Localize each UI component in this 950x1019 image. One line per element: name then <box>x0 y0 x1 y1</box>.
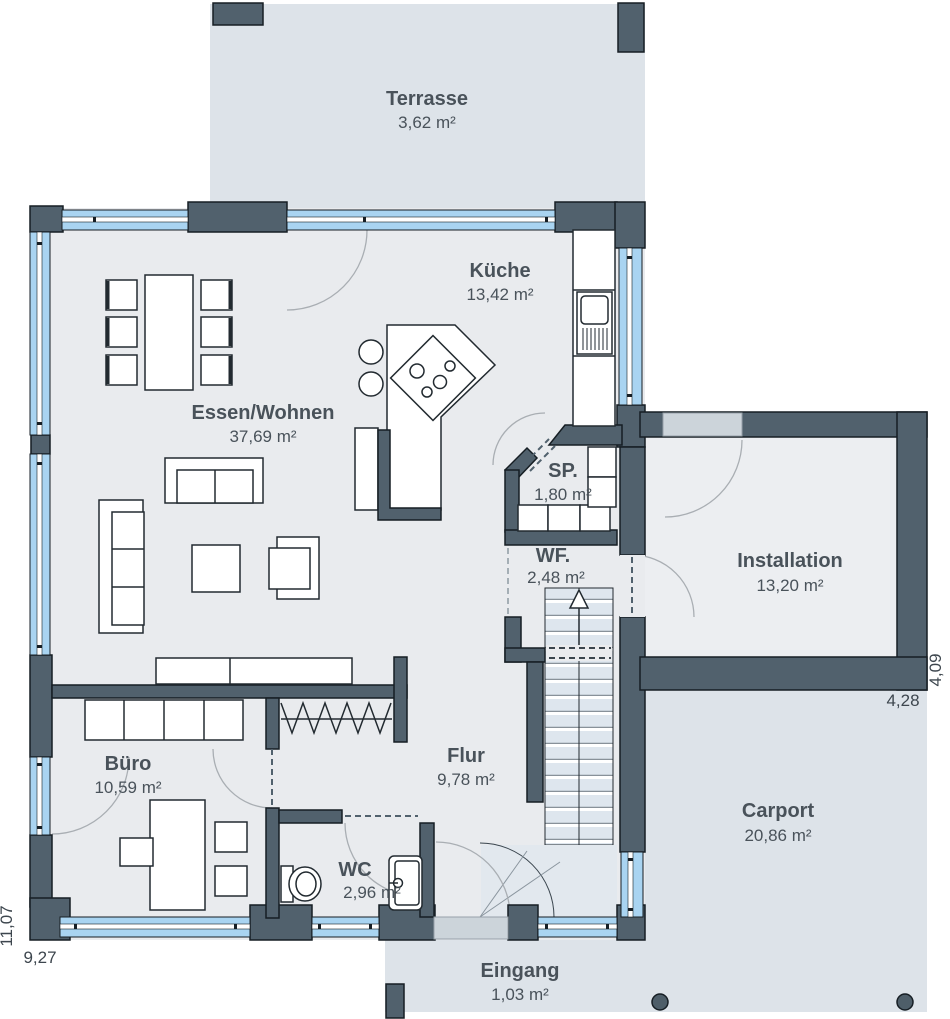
chair <box>201 355 232 385</box>
room-label-wc: WC <box>338 859 371 881</box>
room-label-flur: Flur <box>447 745 485 767</box>
wall-segment <box>30 835 52 907</box>
window <box>621 852 643 917</box>
window <box>30 454 50 655</box>
room-label-kueche: Küche <box>469 260 530 282</box>
room-area-installation: 13,20 m² <box>756 576 823 595</box>
room-area-sp: 1,80 m² <box>534 485 592 504</box>
wall-segment <box>31 435 50 454</box>
room-label-essen-wohnen: Essen/Wohnen <box>192 402 335 424</box>
room-area-flur: 9,78 m² <box>437 770 495 789</box>
eingang-post <box>386 984 404 1018</box>
terrasse-post-right <box>618 3 644 52</box>
island-counter <box>355 428 378 510</box>
room-area-buero: 10,59 m² <box>94 778 161 797</box>
office-box <box>215 822 247 852</box>
sink-basin <box>581 296 608 324</box>
room-area-wc: 2,96 m² <box>343 883 401 902</box>
wall-segment <box>52 685 407 698</box>
burner <box>410 364 424 378</box>
dimension-wing-right: 4,09 <box>926 653 945 686</box>
wall-segment <box>394 657 407 742</box>
dining-table <box>145 275 193 390</box>
burner <box>422 387 432 397</box>
window <box>538 917 617 937</box>
desk-chair <box>120 838 153 866</box>
chair <box>106 355 137 385</box>
burner <box>445 361 455 371</box>
sideboard <box>156 658 352 684</box>
wall-segment <box>615 202 645 248</box>
carport-post-right <box>897 994 913 1010</box>
wall-segment <box>266 808 279 918</box>
shelf <box>580 505 610 531</box>
wall-segment <box>279 810 342 823</box>
carport-post-left <box>652 994 668 1010</box>
room-label-terrasse: Terrasse <box>386 88 468 110</box>
desk <box>150 800 205 910</box>
wall-segment <box>505 530 617 545</box>
wall-segment <box>897 412 927 690</box>
chair <box>201 317 232 347</box>
shelf <box>588 477 616 507</box>
room-area-kueche: 13,42 m² <box>466 285 533 304</box>
room-label-wf: WF. <box>536 545 570 567</box>
room-area-wf: 2,48 m² <box>527 568 585 587</box>
sofa-seat <box>112 512 144 625</box>
dimension-wing-bottom: 4,28 <box>886 691 919 710</box>
wall-segment <box>188 202 287 232</box>
room-label-installation: Installation <box>737 550 843 572</box>
wall-segment <box>620 447 645 555</box>
room-area-eingang: 1,03 m² <box>491 985 549 1004</box>
room-area-carport: 20,86 m² <box>744 826 811 845</box>
window <box>287 210 555 230</box>
armchair-seat <box>269 548 310 589</box>
wall-segment <box>555 202 617 232</box>
room-label-eingang: Eingang <box>481 960 560 982</box>
room-label-sp: SP. <box>548 460 578 482</box>
shelf <box>518 505 548 531</box>
wall-segment <box>640 657 927 690</box>
window <box>30 757 50 835</box>
entrance-door-leaf <box>434 917 508 939</box>
room-label-buero: Büro <box>105 753 152 775</box>
terrasse-post-left <box>213 3 263 25</box>
room-area-essen-wohnen: 37,69 m² <box>229 427 296 446</box>
dimension-bottom: 9,27 <box>23 948 56 967</box>
dining-table-set <box>106 275 232 390</box>
dimension-left: 11,07 <box>0 905 16 946</box>
wall-segment <box>250 905 312 940</box>
window <box>60 917 250 937</box>
floor-plan: Terrasse 3,62 m² Küche 13,42 m² Essen/Wo… <box>0 0 950 1019</box>
wall-segment <box>505 648 545 662</box>
wall-segment <box>30 206 63 232</box>
floor-plan-svg: Terrasse 3,62 m² Küche 13,42 m² Essen/Wo… <box>0 0 950 1019</box>
chair <box>106 280 137 310</box>
stool <box>359 372 383 396</box>
window <box>62 210 188 230</box>
toilet-bowl-inner <box>296 872 316 896</box>
wall-segment <box>527 662 543 802</box>
coffee-table <box>192 545 240 592</box>
window <box>30 232 50 435</box>
wall-segment <box>508 905 538 940</box>
chair <box>201 280 232 310</box>
chair <box>106 317 137 347</box>
sink-hatch <box>583 328 607 350</box>
wall-segment <box>30 655 52 757</box>
wall-segment <box>266 698 279 749</box>
window <box>619 248 642 405</box>
installation-door-leaf <box>663 413 742 436</box>
office-box <box>215 866 247 896</box>
shelf <box>548 505 580 531</box>
wall-segment <box>620 617 645 852</box>
window <box>312 917 379 937</box>
shelf <box>588 447 616 477</box>
wall-segment <box>505 470 519 532</box>
room-area-terrasse: 3,62 m² <box>398 113 456 132</box>
installation-floor <box>645 437 897 657</box>
room-label-carport: Carport <box>742 800 815 822</box>
stool <box>359 340 383 364</box>
burner <box>434 376 447 389</box>
